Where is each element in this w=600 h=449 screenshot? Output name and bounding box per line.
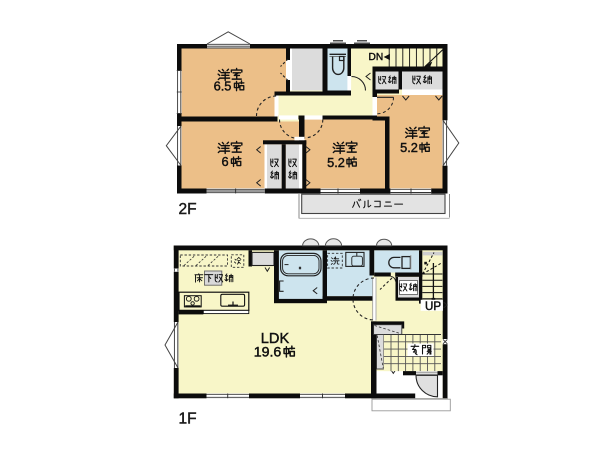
svg-text:1F: 1F	[179, 411, 197, 428]
svg-text:DN: DN	[369, 52, 384, 63]
svg-text:6.5: 6.5	[214, 79, 232, 94]
svg-text:UP: UP	[425, 300, 441, 313]
svg-text:5.2: 5.2	[400, 140, 418, 155]
svg-text:5.2: 5.2	[327, 155, 345, 170]
svg-text:2F: 2F	[179, 201, 197, 218]
svg-text:6: 6	[221, 154, 228, 169]
svg-text:19.6: 19.6	[254, 345, 282, 361]
